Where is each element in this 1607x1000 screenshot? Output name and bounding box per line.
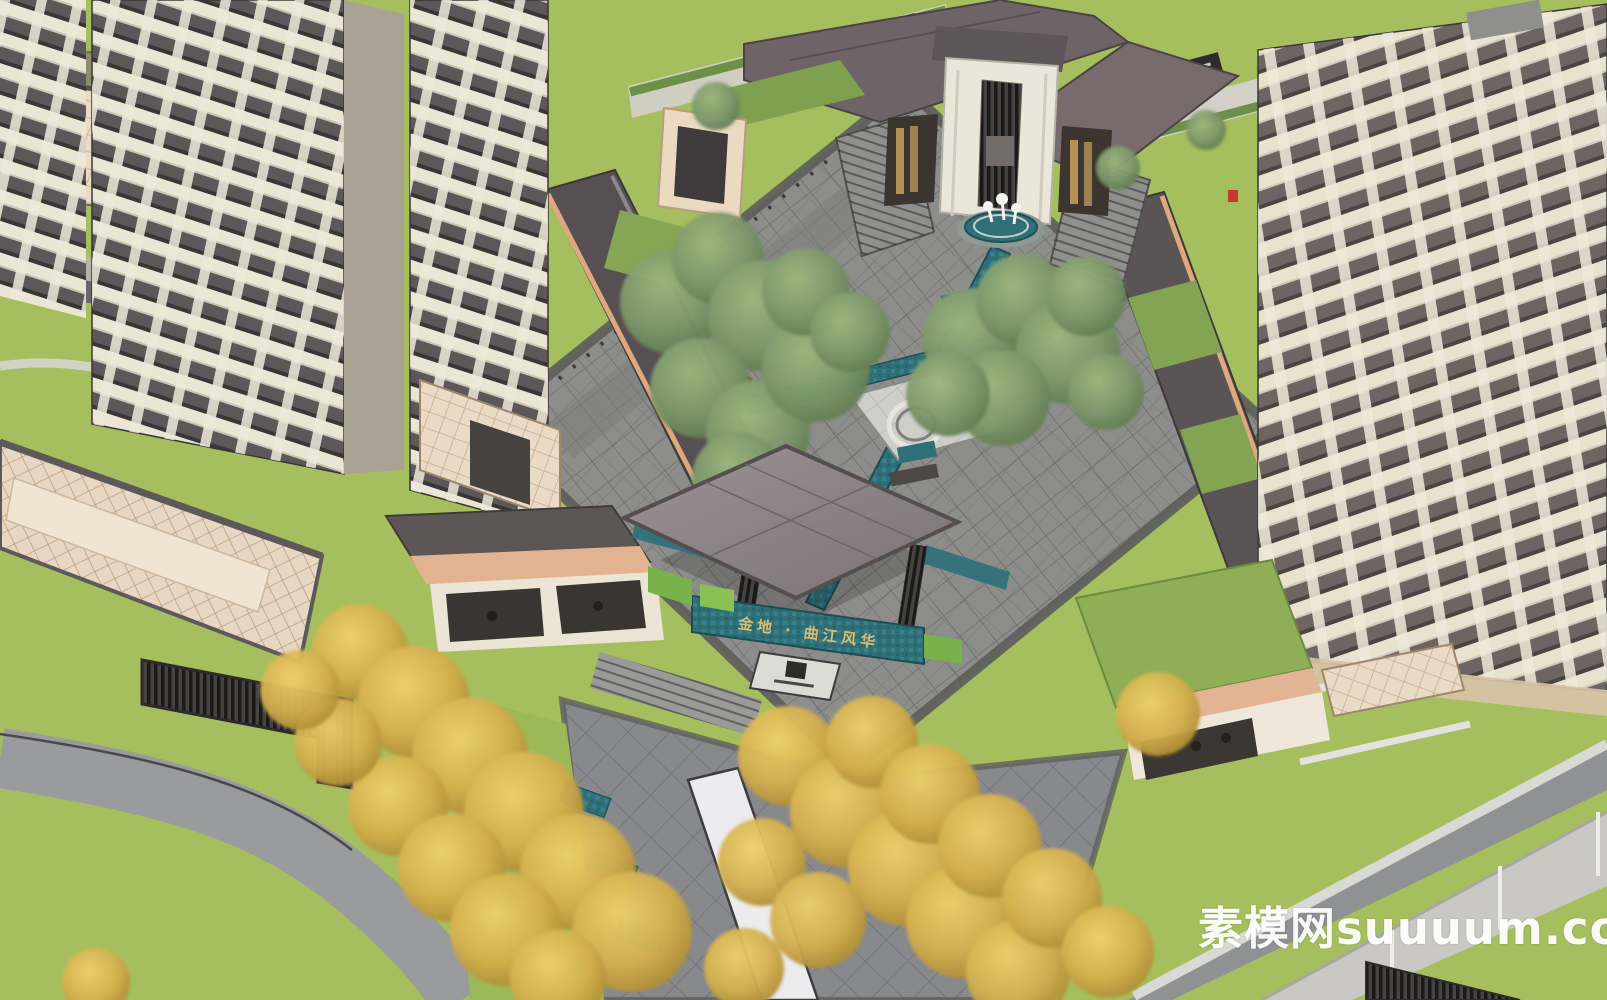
- door-glow: [896, 128, 904, 194]
- unit-portal-opening: [674, 126, 728, 204]
- tower-side: [344, 0, 404, 474]
- person-silhouette: [487, 611, 497, 621]
- person-silhouette: [1191, 741, 1201, 751]
- tower-piers: [1258, 4, 1607, 692]
- plaque-logo: [785, 661, 807, 680]
- person-silhouette: [593, 601, 603, 611]
- door-glow: [1084, 142, 1092, 206]
- person-silhouette: [1221, 733, 1231, 743]
- tree-canopy-green: [1186, 110, 1226, 150]
- tree-canopy-green: [810, 292, 890, 372]
- tree-canopy-green: [1096, 146, 1140, 190]
- tree-canopy-green: [1068, 354, 1144, 430]
- tree-canopy-yellow: [260, 650, 340, 730]
- tree-canopy-yellow: [770, 872, 866, 968]
- crane-leg: [1014, 208, 1016, 224]
- tree-canopy-yellow: [1116, 672, 1200, 756]
- render-canvas: 金地 · 曲江风华 素模网suuuum.com: [0, 0, 1607, 1000]
- tree-canopy-green: [692, 82, 740, 130]
- hydrant: [1228, 190, 1238, 202]
- tree-canopy-green: [1046, 256, 1126, 336]
- tower-piers: [92, 0, 344, 474]
- tree-canopy-yellow: [1062, 906, 1154, 998]
- tower-piers: [0, 0, 86, 318]
- door-glow: [1070, 140, 1078, 204]
- door-glow: [910, 126, 918, 192]
- portal-plaque: [986, 136, 1014, 166]
- scene-svg: 金地 · 曲江风华: [0, 0, 1607, 1000]
- tree-canopy-green: [906, 352, 990, 436]
- crane-leg: [1002, 199, 1004, 220]
